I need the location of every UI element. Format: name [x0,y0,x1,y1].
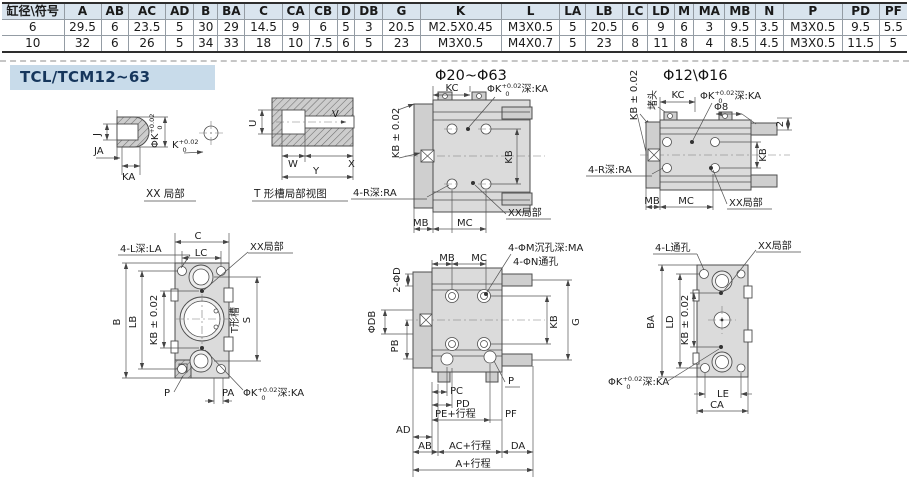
drawing-area: J JA KA ΦK+0.020 K+0.020 XX 局部 [0,0,909,480]
dim-label-ja: JA [93,146,104,157]
dim-label-phi8: Φ8 [714,102,728,113]
dim-label-r-depth: 4-R深:RA [353,187,397,199]
dim-label-mc: MC [457,218,473,229]
drawing-face-right: 4-L通孔 XX局部 BA LD KB ± 0.02 ΦK+0.020深:KA … [608,239,801,414]
dim-label-kb-tol: KB ± 0.02 [149,295,160,345]
dim-label-pa: PA [222,388,234,399]
dim-label-mb: MB [413,218,429,229]
drawing-phi20-63: Φ20~Φ63 KC ΦK+0.020深:KA [351,68,551,233]
tslot-caption: T 形槽局部视图 [253,187,327,200]
dim-label-kc: KC [446,83,459,94]
dim-label-phik-ka: ΦK+0.020深:KA [700,89,761,105]
dim-label-ca: CA [710,400,724,411]
dim-label-kb: KB [504,150,515,164]
drawing-detail-xx: J JA KA ΦK+0.020 K+0.020 XX 局部 [92,110,223,201]
drawing-tslot-detail: V U W X Y T 形槽局部视图 [248,98,355,201]
dim-label-s: S [242,317,253,323]
dim-label-lc: LC [195,248,208,259]
dim-label-2: 2 [775,121,786,127]
dim-label-kc: KC [672,90,685,101]
drawing-title-phi20-63: Φ20~Φ63 [435,68,507,84]
dim-label-kb: KB [549,315,560,329]
leader-label-xx: XX局部 [729,196,763,209]
dim-label-kb-tol: KB ± 0.02 [391,108,402,158]
dim-label-g: G [571,318,582,326]
dim-label-kb-tol: KB ± 0.02 [680,295,691,345]
dim-label-phik-ka: ΦK+0.020深:KA [608,375,669,391]
drawing-face-left: 4-L深:LA XX局部 C LC B LB KB ± 0.02 [112,231,304,404]
dim-label-le: LE [717,389,729,400]
dim-label-ac: AC+行程 [449,439,491,452]
dim-label-ld: LD [665,315,676,329]
drawing-title-phi12-16: Φ12\Φ16 [663,68,728,84]
dim-label-ad: AD [396,425,411,436]
dim-label-da: DA [511,441,526,452]
dim-label-p: P [508,376,514,387]
dim-label-kb-tol: KB ± 0.02 [629,70,640,120]
dim-label-ka: KA [122,172,135,183]
catalog-page: 缸径\符号AABACADBBACCACBDDBGKLLALBLCLDMMAMBN… [0,0,909,480]
dim-label-j: J [92,133,103,137]
dim-label-v: V [332,109,339,120]
dim-label-lb: LB [128,316,139,329]
dim-label-2-phid: 2-ΦD [392,267,403,293]
dim-label-pf: PF [505,409,517,420]
dim-label-k-tol: K+0.020 [172,138,198,154]
dim-label-m-hole: 4-ΦM沉孔深:MA [508,241,583,254]
dim-label-mb: MB [439,253,455,264]
drawing-side-middle: MB MC 4-ΦM沉孔深:MA 4-ΦN通孔 2-ΦD ΦDB PB KB G [367,241,583,477]
dim-label-p: P [164,388,170,399]
dim-label-r-depth: 4-R深:RA [588,164,632,176]
dim-label-mb: MB [644,196,660,207]
dim-label-phik-ka: ΦK+0.020深:KA [487,82,548,98]
dim-label-phidb: ΦDB [367,311,378,334]
dim-label-l-depth: 4-L深:LA [120,243,162,255]
leader-label-xx: XX局部 [758,239,792,252]
dim-label-pe: PE+行程 [435,407,476,420]
dim-label-mc: MC [678,196,694,207]
dim-label-ab: AB [418,441,432,452]
leader-label-xx: XX局部 [508,206,542,219]
dim-label-b: B [112,318,123,325]
dim-label-u: U [248,120,259,127]
dim-label-kb: KB [758,148,769,162]
dim-label-ba: BA [646,315,657,329]
dim-label-pb: PB [390,339,401,352]
dim-label-y: Y [312,166,320,177]
dim-label-phik-tol: ΦK+0.020 [148,114,164,148]
dim-label-plug: 堵头 [646,90,659,110]
dim-label-a: A+行程 [455,457,490,470]
detail-xx-caption: XX 局部 [146,187,185,200]
label-tslot: T形槽 [228,307,241,334]
dim-label-w: W [288,159,298,170]
dim-label-mc: MC [471,253,487,264]
dim-label-n-hole: 4-ΦN通孔 [513,256,558,268]
drawing-phi12-16: Φ12\Φ16 KB ± 0.02 堵头 KC ΦK+0. [586,68,792,210]
dim-label-l-hole: 4-L通孔 [655,242,691,254]
leader-label-xx: XX局部 [250,240,284,253]
dim-label-c: C [195,231,202,242]
dim-label-x: X [348,159,355,170]
dim-label-phik-ka: ΦK+0.020深:KA [243,386,304,402]
